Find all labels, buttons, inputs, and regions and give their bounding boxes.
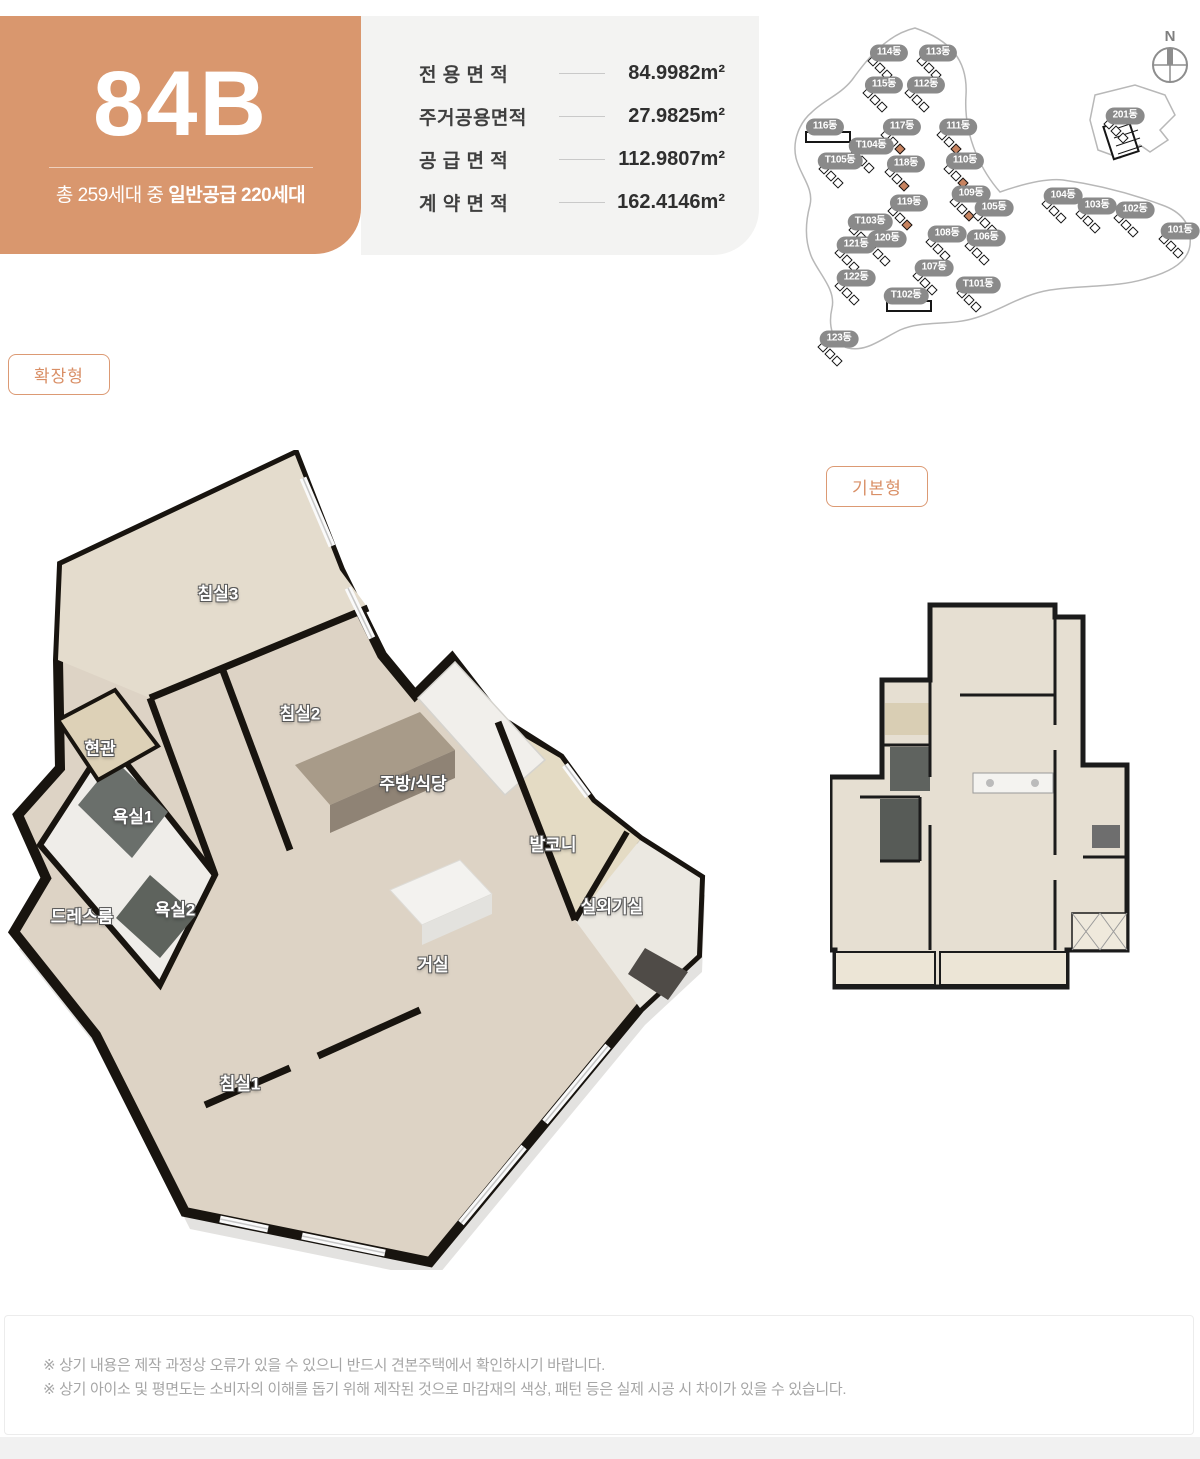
room-label: 침실2 (280, 700, 321, 725)
area-row: 주거공용면적 27.9825m² (361, 95, 759, 138)
room-label: 침실1 (220, 1070, 261, 1095)
room-label: 침실3 (198, 580, 239, 605)
building-badge: 115동 (865, 77, 903, 94)
room-label: 현관 (84, 735, 115, 760)
area-value: 162.4146m² (605, 191, 725, 214)
expanded-type-badge: 확장형 (8, 354, 110, 395)
compass: N (1148, 28, 1192, 89)
room-label: 욕실2 (155, 896, 196, 921)
supply-bold: 일반공급 220세대 (168, 185, 305, 206)
divider (49, 167, 313, 168)
building-badge: 113동 (919, 45, 957, 62)
building-badge: 122동 (837, 270, 876, 287)
room-label: 드레스룸 (51, 903, 114, 928)
balcony-strip (940, 952, 1067, 985)
building-badge: 118동 (887, 156, 925, 173)
disclaimer-line: ※ 상기 아이소 및 평면도는 소비자의 이해를 돕기 위해 제작된 것으로 마… (5, 1378, 1193, 1402)
supply-prefix: 총 259세대 중 (56, 185, 164, 206)
area-row: 전 용 면 적 84.9982m² (361, 52, 759, 95)
building-badge: 107동 (915, 260, 954, 277)
area-label: 공 급 면 적 (419, 146, 549, 173)
dash-line (559, 73, 605, 74)
room-label: 거실 (417, 951, 448, 976)
area-row: 계 약 면 적 162.4146m² (361, 181, 759, 224)
building-badge: 201동 (1106, 108, 1145, 125)
building-badge: T102동 (884, 288, 929, 305)
room-label: 실외기실 (581, 893, 644, 918)
building-badge: 104동 (1044, 188, 1083, 205)
floor-plan-3d: 침실3침실2현관욕실1주방/식당발코니드레스룸욕실2실외기실거실침실1 (0, 450, 710, 1270)
building-badge: T103동 (848, 214, 893, 231)
building-badge: 123동 (820, 331, 859, 348)
building-badge: 121동 (837, 237, 876, 254)
area-info-card: 전 용 면 적 84.9982m² 주거공용면적 27.9825m² 공 급 면… (361, 16, 759, 255)
dash-line (559, 116, 605, 117)
room-label: 발코니 (530, 831, 577, 856)
building-badge: 103동 (1078, 198, 1117, 215)
building-badge: 110동 (946, 153, 984, 170)
building-badge: 116동 (806, 119, 844, 136)
building-badge: 114동 (870, 45, 908, 62)
dash-line (559, 202, 605, 203)
building-badge: 105동 (975, 200, 1014, 217)
unit-code: 84B (0, 56, 361, 153)
bath2-2d (880, 799, 920, 861)
area-label: 주거공용면적 (419, 103, 549, 130)
disclaimer-line: ※ 상기 내용은 제작 과정상 오류가 있을 수 있으니 반드시 견본주택에서 … (5, 1316, 1193, 1378)
building-badge: 111동 (939, 119, 977, 136)
hatch-area-2d (1072, 913, 1127, 950)
disclaimer-box: ※ 상기 내용은 제작 과정상 오류가 있을 수 있으니 반드시 견본주택에서 … (4, 1315, 1194, 1435)
area-label: 전 용 면 적 (419, 60, 549, 87)
footer-strip (0, 1437, 1200, 1459)
page: 84B 총 259세대 중 일반공급 220세대 전 용 면 적 84.9982… (0, 0, 1200, 1459)
compass-icon (1151, 46, 1189, 84)
site-map: 114동113동115동112동116동117동111동T104동T105동11… (790, 0, 1200, 360)
room-label: 욕실1 (113, 803, 154, 828)
area-label: 계 약 면 적 (419, 189, 549, 216)
floor-plan-2d (830, 595, 1145, 1015)
building-badge: 108동 (928, 226, 967, 243)
area-value: 27.9825m² (605, 105, 725, 128)
entry-tile-2d (885, 703, 930, 735)
building-badge: 112동 (907, 77, 945, 94)
dash-line (559, 159, 605, 160)
unit-supply-summary: 총 259세대 중 일반공급 220세대 (0, 180, 361, 207)
building-badge: 119동 (890, 195, 928, 212)
ac-unit-2d (1092, 825, 1120, 848)
kitchen-counter-2d (973, 773, 1053, 793)
area-row: 공 급 면 적 112.9807m² (361, 138, 759, 181)
floor-plan-2d-drawing (830, 595, 1145, 1015)
basic-type-badge: 기본형 (826, 466, 928, 507)
bath1-2d (890, 747, 930, 791)
compass-north-label: N (1148, 28, 1192, 45)
balcony-strip (835, 952, 935, 985)
unit-type-card: 84B 총 259세대 중 일반공급 220세대 (0, 16, 361, 254)
area-value: 112.9807m² (605, 148, 725, 171)
building-badge: 101동 (1161, 223, 1200, 240)
floor-plan-3d-drawing (0, 450, 710, 1270)
building-badge: 117동 (883, 119, 921, 136)
building-badge: 106동 (967, 230, 1006, 247)
room-label: 주방/식당 (379, 770, 446, 795)
building-badge: 102동 (1116, 202, 1155, 219)
building-badge: T101동 (956, 277, 1001, 294)
area-value: 84.9982m² (605, 62, 725, 85)
building-badge: T105동 (818, 153, 863, 170)
